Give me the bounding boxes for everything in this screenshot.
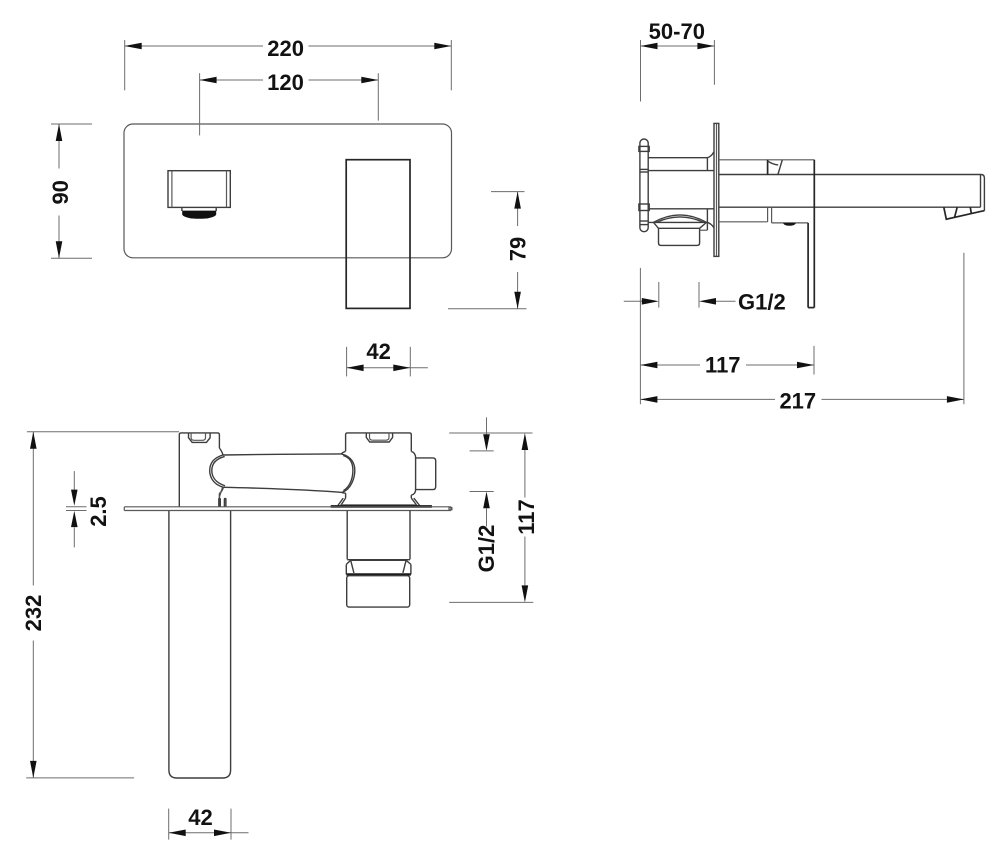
- svg-text:G1/2: G1/2: [738, 289, 786, 314]
- svg-text:G1/2: G1/2: [474, 525, 499, 573]
- svg-text:2.5: 2.5: [86, 496, 111, 527]
- svg-text:50-70: 50-70: [649, 19, 705, 44]
- svg-text:42: 42: [188, 805, 212, 830]
- svg-text:90: 90: [48, 180, 73, 204]
- svg-text:220: 220: [267, 36, 304, 61]
- svg-text:42: 42: [366, 339, 390, 364]
- svg-text:117: 117: [705, 353, 741, 378]
- svg-text:217: 217: [779, 388, 816, 413]
- svg-text:120: 120: [267, 70, 304, 95]
- svg-text:117: 117: [514, 499, 539, 535]
- svg-text:79: 79: [506, 237, 531, 261]
- svg-text:232: 232: [21, 595, 46, 632]
